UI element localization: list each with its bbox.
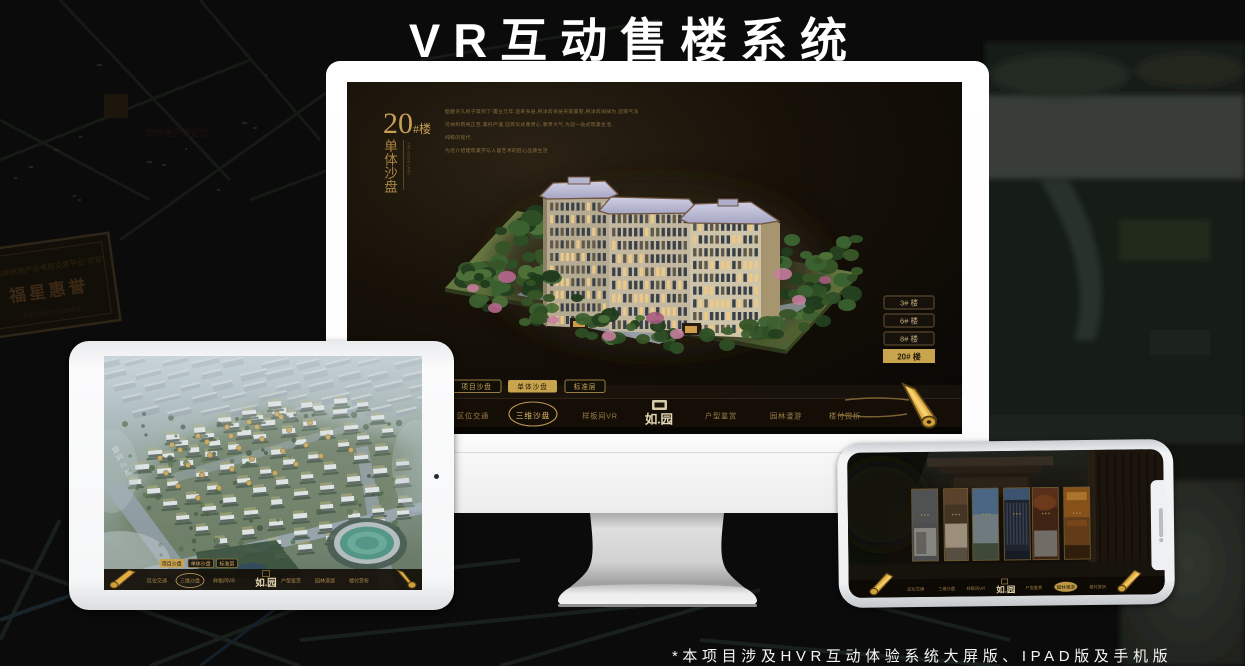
svg-text:为您介绍建筑美学与人居艺术的匠心品质生活: 为您介绍建筑美学与人居艺术的匠心品质生活 xyxy=(445,147,548,154)
svg-text:纯粹的现代.: 纯粹的现代. xyxy=(445,134,472,141)
svg-text:如.园: 如.园 xyxy=(255,577,276,589)
svg-text:8# 楼: 8# 楼 xyxy=(900,334,918,344)
svg-text:项目沙盘: 项目沙盘 xyxy=(461,382,491,391)
svg-text:户型鉴赏: 户型鉴赏 xyxy=(281,578,301,585)
svg-text:园林漫游: 园林漫游 xyxy=(770,412,802,421)
svg-text:标准层: 标准层 xyxy=(219,560,234,567)
svg-text:酝酿许久终于等到了!置业元年,迎来多层,纯洋房多层央观美墅,: 酝酿许久终于等到了!置业元年,迎来多层,纯洋房多层央观美墅,纯洋房阔绰为,迎宾气… xyxy=(445,108,639,115)
svg-text:标准层: 标准层 xyxy=(574,382,597,391)
svg-text:3# 楼: 3# 楼 xyxy=(900,298,918,308)
svg-text:楼付赏析: 楼付赏析 xyxy=(349,578,369,585)
svg-text:协信地产欢迎您: 协信地产欢迎您 xyxy=(146,127,209,138)
svg-text:项目沙盘: 项目沙盘 xyxy=(162,560,182,567)
svg-text:20# 楼: 20# 楼 xyxy=(897,352,921,362)
svg-text:可纳构筑纯正至,美好严谨,迎宾仪式尊贵心,尊贵大气,为迎一站: 可纳构筑纯正至,美好严谨,迎宾仪式尊贵心,尊贵大气,为迎一站式筑美生活, xyxy=(445,121,613,128)
svg-text:样板间VR: 样板间VR xyxy=(213,578,235,585)
svg-text:单体沙盘: 单体沙盘 xyxy=(384,139,398,195)
svg-text:样板间VR: 样板间VR xyxy=(582,412,618,421)
svg-text:单体沙盘: 单体沙盘 xyxy=(191,560,211,567)
svg-text:如.园: 如.园 xyxy=(645,412,673,427)
svg-text:THE GOOD LAND: THE GOOD LAND xyxy=(407,142,412,175)
svg-text:户型鉴赏: 户型鉴赏 xyxy=(705,412,737,421)
svg-text:园林漫游: 园林漫游 xyxy=(315,578,335,585)
svg-text:区位交通: 区位交通 xyxy=(147,578,167,585)
svg-text:如.园: 如.园 xyxy=(996,584,1015,594)
svg-text:三维沙盘: 三维沙盘 xyxy=(180,578,200,585)
svg-text:单体沙盘: 单体沙盘 xyxy=(517,382,547,391)
svg-text:6# 楼: 6# 楼 xyxy=(900,316,918,326)
svg-text:区位交通: 区位交通 xyxy=(457,412,489,421)
svg-text:三维沙盘: 三维沙盘 xyxy=(516,411,550,421)
